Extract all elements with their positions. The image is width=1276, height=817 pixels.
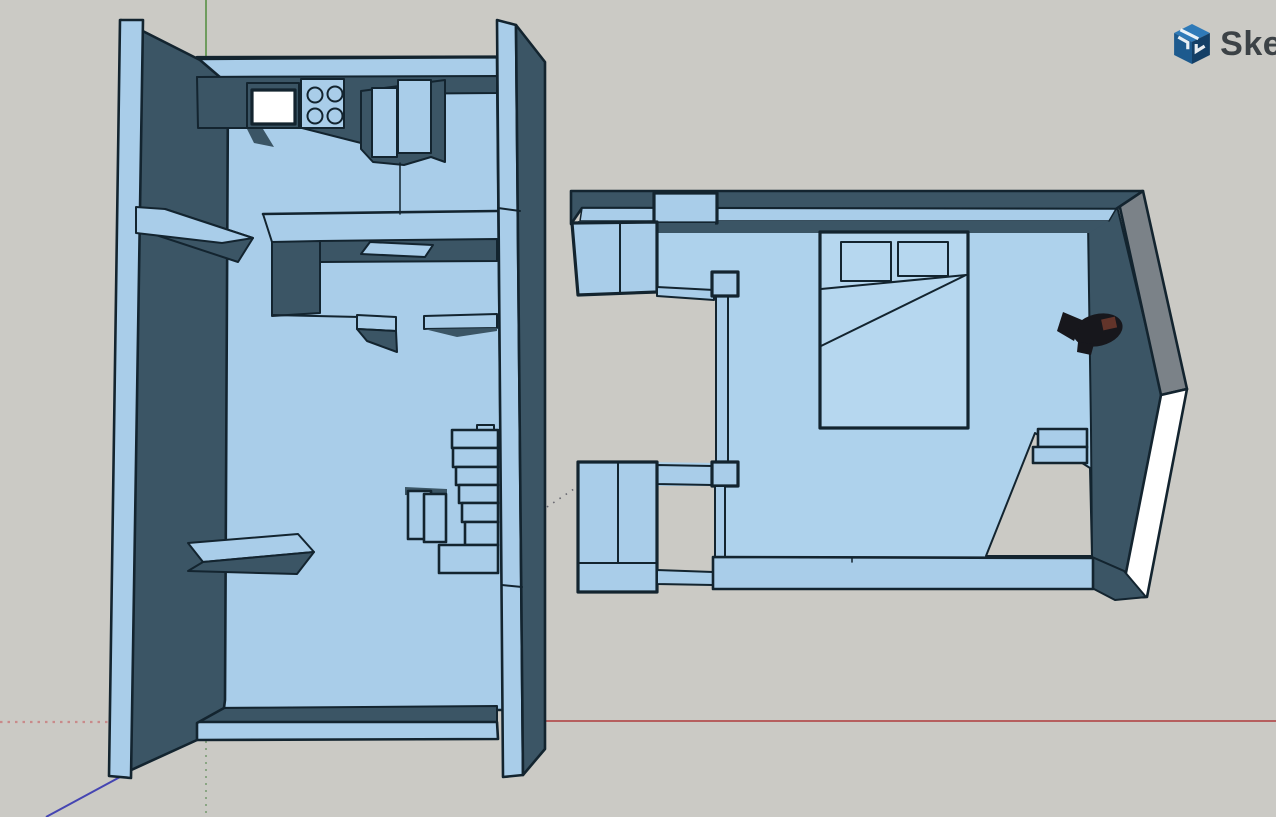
ramp-step[interactable] xyxy=(1033,447,1087,463)
sketchup-cube-icon xyxy=(1174,24,1210,64)
stove-burner xyxy=(328,87,343,102)
upper-left-wall-block[interactable] xyxy=(572,222,657,295)
sketchup-logo: Sket xyxy=(1174,24,1276,64)
thin-wall-link-lower[interactable] xyxy=(657,465,712,485)
bottom-wall-top-face[interactable] xyxy=(195,722,498,740)
stair-landing[interactable] xyxy=(439,545,498,573)
partition-door-opening[interactable] xyxy=(361,242,433,257)
sketchup-3d-viewport[interactable]: Sket xyxy=(0,0,1276,817)
stove-burner xyxy=(308,88,323,103)
cabinet-b-top[interactable] xyxy=(398,80,431,153)
thin-partition-wall-lower[interactable] xyxy=(715,486,725,557)
stair-step[interactable] xyxy=(462,503,498,522)
bed-pillow[interactable] xyxy=(841,242,891,281)
window-box[interactable] xyxy=(654,193,717,223)
right-apartment-group[interactable] xyxy=(570,191,1187,600)
bottom-wall-inner-face[interactable] xyxy=(197,706,497,723)
right-counter-top[interactable] xyxy=(424,314,497,329)
doorway-gap xyxy=(570,294,716,463)
bed-pillow[interactable] xyxy=(898,242,948,276)
thin-partition-wall[interactable] xyxy=(716,296,728,464)
ramp-step[interactable] xyxy=(1038,429,1087,447)
sketchup-wordmark: Sket xyxy=(1220,25,1276,64)
cabinet-a-top[interactable] xyxy=(372,88,397,157)
bottom-wall-link[interactable] xyxy=(657,570,713,585)
blue-axis-positive xyxy=(46,777,120,817)
stair-step[interactable] xyxy=(453,448,498,467)
wall-post-cap[interactable] xyxy=(712,272,738,296)
stove-burner xyxy=(328,109,343,124)
stair-step[interactable] xyxy=(452,430,498,448)
stove-burner xyxy=(308,109,323,124)
bed[interactable] xyxy=(820,232,968,428)
partition-return-wall-face[interactable] xyxy=(272,241,320,316)
left-floor-face[interactable] xyxy=(199,57,503,710)
stair-step[interactable] xyxy=(459,485,498,503)
top-wall-outer-edge xyxy=(197,57,497,58)
doorway-gap xyxy=(655,486,714,571)
wall-post-cap[interactable] xyxy=(712,462,738,486)
left-apartment-group[interactable] xyxy=(109,20,545,778)
window-box-shadow xyxy=(656,223,715,233)
bedroom-bottom-wall[interactable] xyxy=(713,557,1093,589)
kitchen-sink-basin[interactable] xyxy=(252,90,295,124)
stair-lower-box[interactable] xyxy=(424,494,446,542)
stair-step[interactable] xyxy=(465,522,498,545)
model-scene[interactable] xyxy=(0,0,1276,817)
stair-step[interactable] xyxy=(456,467,498,485)
